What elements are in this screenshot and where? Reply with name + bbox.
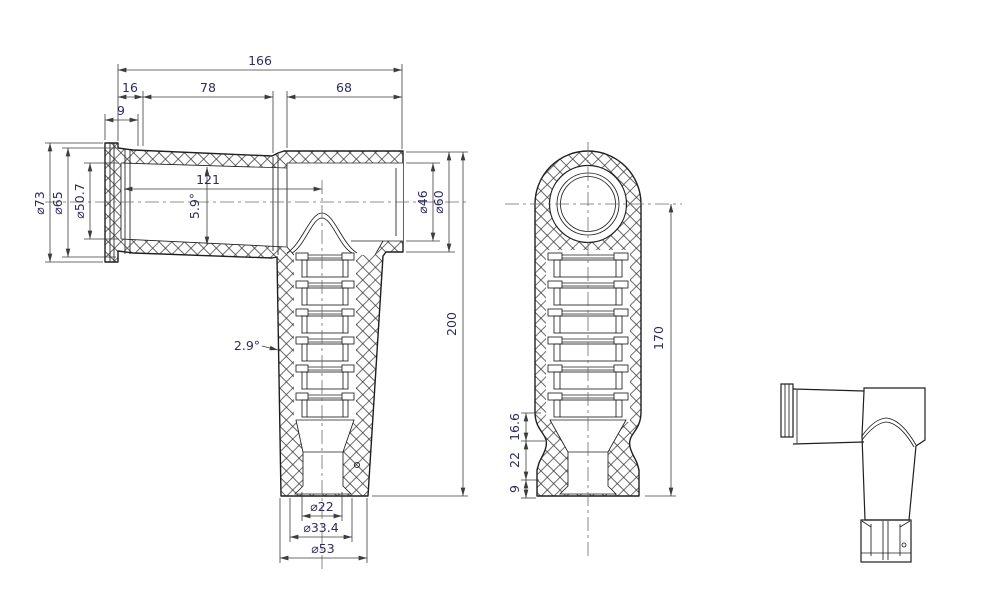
dim-label: 16: [122, 80, 138, 95]
outline-body: [862, 388, 925, 520]
view-front-section: 170 16.6 22 9: [505, 142, 682, 560]
dim-label: ⌀53: [311, 541, 334, 556]
drawing-canvas: 166 16 78 68 9 ⌀73 ⌀65 ⌀50.7: [0, 0, 984, 610]
view-side-section: 166 16 78 68 9 ⌀73 ⌀65 ⌀50.7: [32, 53, 470, 572]
dim-tip-bore: ⌀22: [302, 499, 342, 516]
dim-label: ⌀50.7: [72, 183, 87, 218]
dim-label: 170: [651, 326, 666, 350]
dim-label: ⌀60: [431, 190, 446, 213]
dim-label: 68: [336, 80, 352, 95]
dim-bore-id: ⌀50.7: [72, 163, 90, 239]
dim-outlet-length: 68: [287, 80, 402, 97]
dim-label: ⌀22: [310, 499, 333, 514]
dim-label: ⌀73: [32, 191, 47, 214]
dim-label: 5.9°: [187, 193, 202, 219]
extension-lines-side: [45, 64, 468, 563]
outline-flange-cap: [781, 384, 793, 437]
dim-body-draft-angle: 2.9°: [234, 338, 278, 353]
dim-flange-length: 16: [118, 80, 143, 97]
dim-shoulder: 16.6: [507, 413, 526, 441]
dim-lip: 9: [507, 480, 526, 498]
dim-neck-od: ⌀65: [50, 148, 68, 257]
dim-label: ⌀33.4: [303, 520, 338, 535]
dim-tip-flare: ⌀33.4: [290, 520, 352, 537]
dim-lip-width: 9: [105, 103, 138, 120]
dim-flange-od: ⌀73: [32, 143, 50, 262]
view-outline: [781, 384, 925, 562]
dim-body-od: ⌀53: [280, 541, 367, 558]
dim-height-from-axis: 170: [651, 204, 671, 496]
dim-label: ⌀65: [50, 191, 65, 214]
dim-overall-length: 166: [118, 53, 402, 70]
dim-label: 22: [507, 452, 522, 468]
dim-label: 2.9°: [234, 338, 260, 353]
dim-label: 78: [200, 80, 216, 95]
dim-label: 16.6: [507, 413, 522, 441]
technical-drawing: 166 16 78 68 9 ⌀73 ⌀65 ⌀50.7: [0, 0, 984, 610]
dim-taper-length: 78: [143, 80, 273, 97]
outline-tube: [793, 389, 864, 444]
outline-vent-hole: [902, 543, 906, 547]
dim-label: 9: [507, 485, 522, 493]
outline-base: [861, 520, 911, 562]
dim-label: 200: [444, 312, 459, 336]
dim-skirt: 22: [507, 441, 526, 480]
dim-label: 121: [196, 172, 220, 187]
dim-label: 166: [248, 53, 272, 68]
dim-label: 9: [117, 103, 125, 118]
dim-label: ⌀46: [415, 190, 430, 213]
dim-overall-height: 200: [444, 152, 463, 496]
